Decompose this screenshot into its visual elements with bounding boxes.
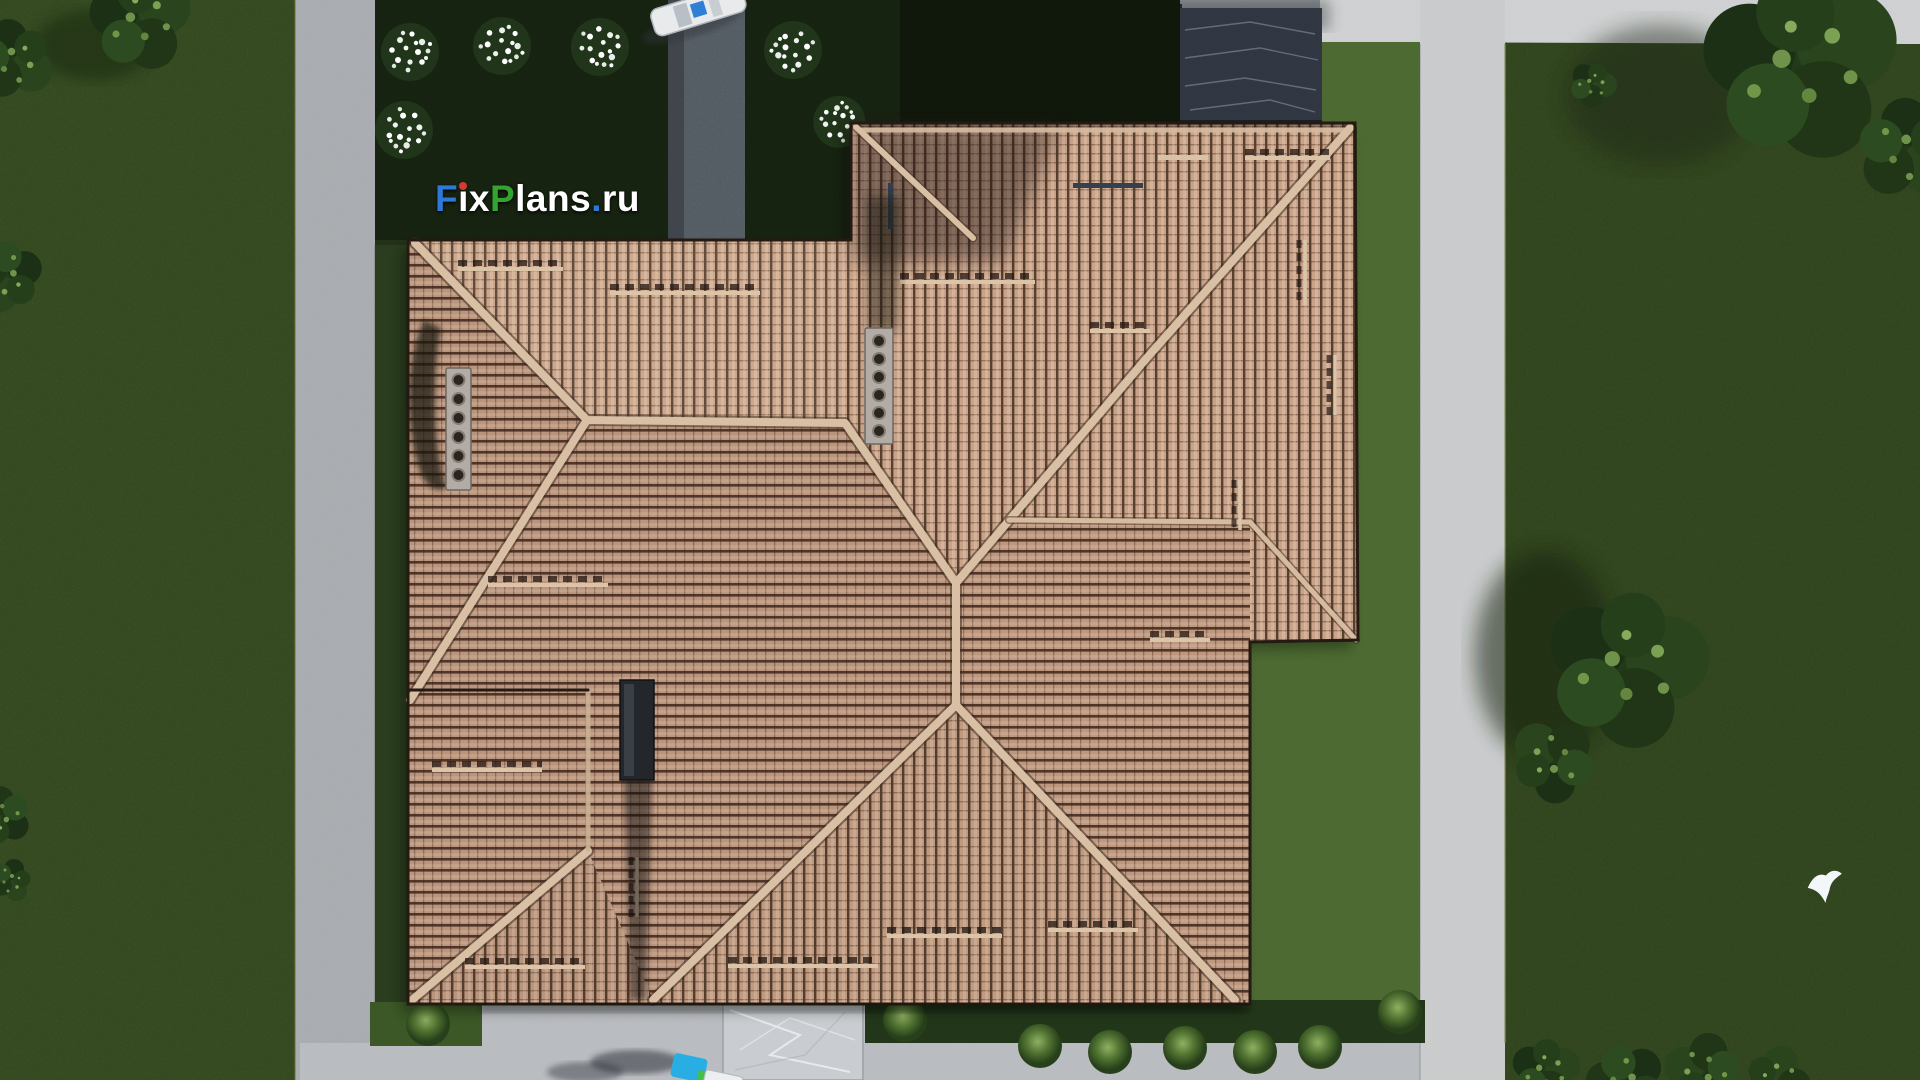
logo-part-x: x — [469, 178, 490, 220]
site-plan-render — [0, 0, 1920, 1080]
green-bush — [1018, 1024, 1062, 1068]
green-bush — [1088, 1030, 1132, 1074]
green-bush — [1163, 1026, 1207, 1070]
logo-part-f: F — [435, 178, 458, 220]
green-bush — [1378, 990, 1422, 1034]
flower-bush — [381, 23, 439, 81]
aerial-render-stage: FixPlans.ru — [0, 0, 1920, 1080]
green-bush — [1298, 1025, 1342, 1069]
green-bush — [1233, 1030, 1277, 1074]
logo-part-ru: ru — [602, 178, 640, 220]
roof — [402, 123, 1358, 1012]
logo-part-dot: . — [591, 178, 602, 220]
logo-part-p: P — [490, 178, 515, 220]
logo-part-lans: lans — [515, 178, 591, 220]
eave-shadow — [480, 1004, 1250, 1013]
watermark-logo: FixPlans.ru — [435, 178, 640, 220]
logo-part-i: i — [458, 178, 469, 220]
